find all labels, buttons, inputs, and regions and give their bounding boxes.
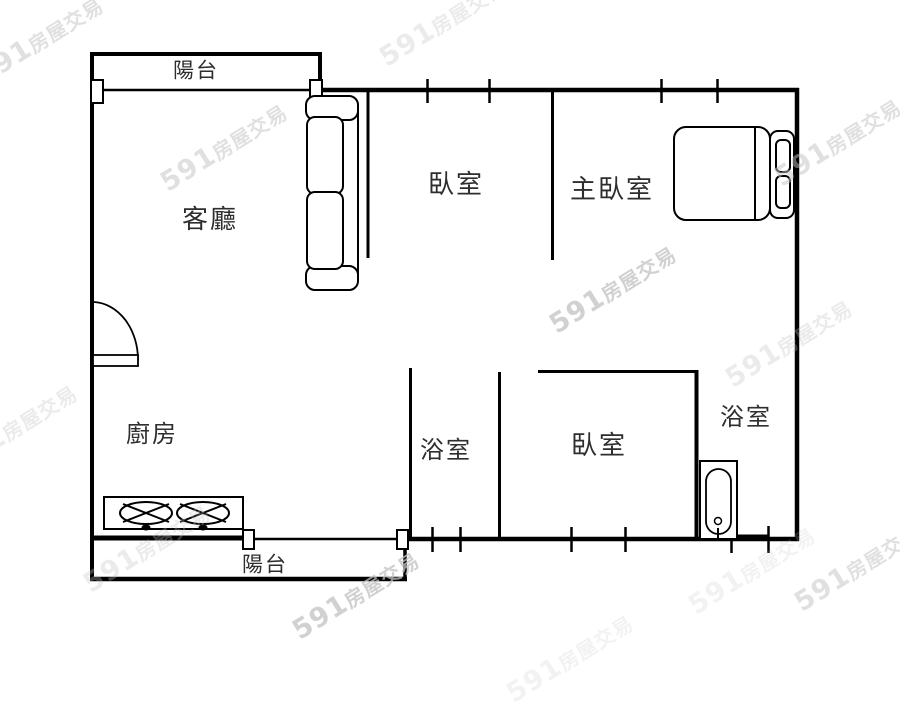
room-label-kitchen: 廚房 (126, 422, 178, 446)
double-bed (674, 127, 794, 220)
room-label-bedroom-lower: 臥室 (571, 433, 627, 459)
jamb-balcony-bottom-right (397, 530, 408, 549)
room-label-bathroom-right: 浴室 (720, 405, 772, 429)
sofa-seat-cushion (307, 192, 343, 269)
room-label-balcony-bottom: 陽台 (242, 555, 288, 576)
bathtub (700, 461, 737, 539)
jamb-balcony-bottom-left (243, 530, 254, 549)
room-label-balcony-top: 陽台 (173, 61, 219, 82)
bed-pillow (776, 176, 790, 208)
room-label-living-room: 客廳 (182, 207, 238, 233)
room-label-bathroom-mid: 浴室 (420, 438, 472, 462)
jamb-balcony-top-left (91, 80, 103, 103)
sofa-seat-cushion (307, 117, 343, 194)
room-label-master-bedroom: 主臥室 (570, 177, 654, 203)
door-panel (93, 355, 138, 366)
gas-stove (104, 497, 243, 531)
entry-door (93, 302, 138, 366)
door-jambs (91, 80, 408, 549)
stove-knob (199, 525, 208, 531)
sofa (306, 96, 358, 290)
room-label-bedroom-top: 臥室 (428, 172, 484, 198)
stove-knob (142, 525, 151, 531)
bed-pillow (776, 140, 790, 172)
floorplan-page: { "watermark": { "brand": "591", "suffix… (0, 0, 900, 675)
stove-counter (104, 497, 243, 529)
bathtub-drain (715, 518, 722, 525)
floorplan-canvas (0, 0, 900, 675)
door-swing-arc (94, 302, 138, 360)
